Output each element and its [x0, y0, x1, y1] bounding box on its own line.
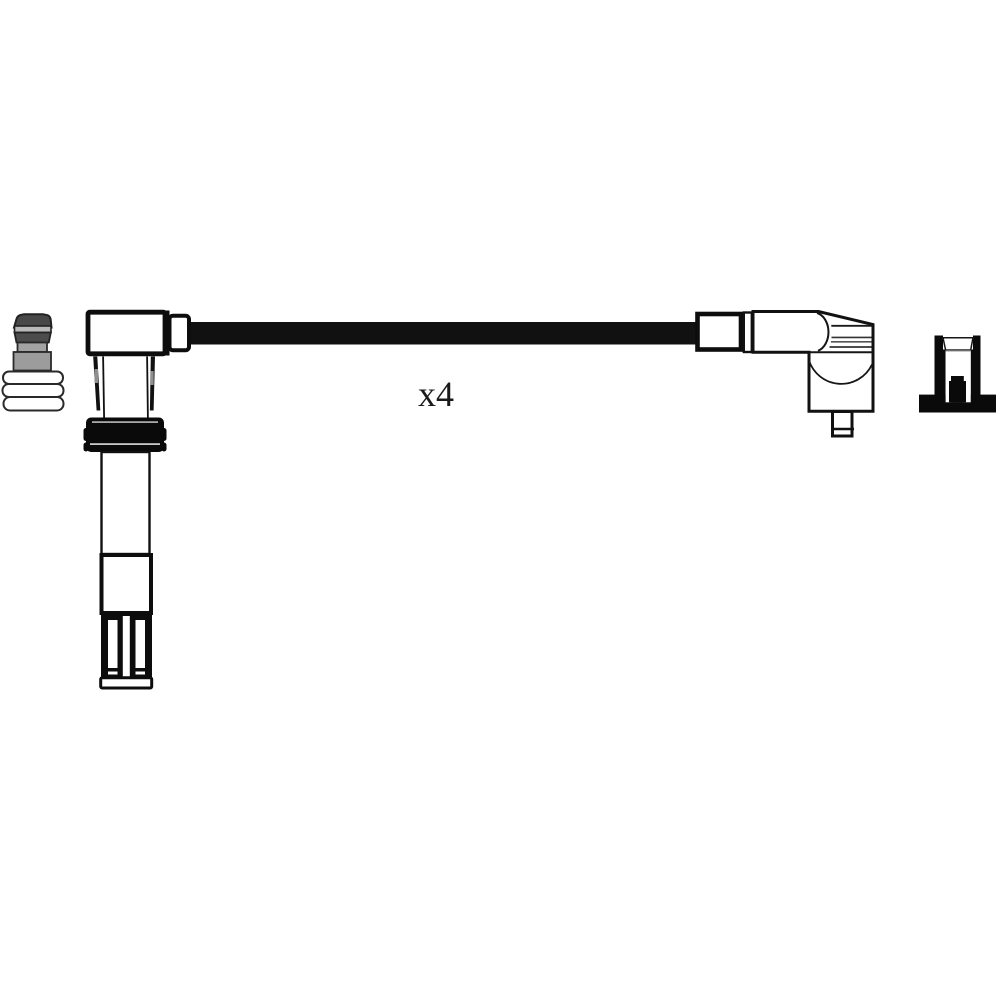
svg-text:x4: x4 — [418, 374, 454, 414]
